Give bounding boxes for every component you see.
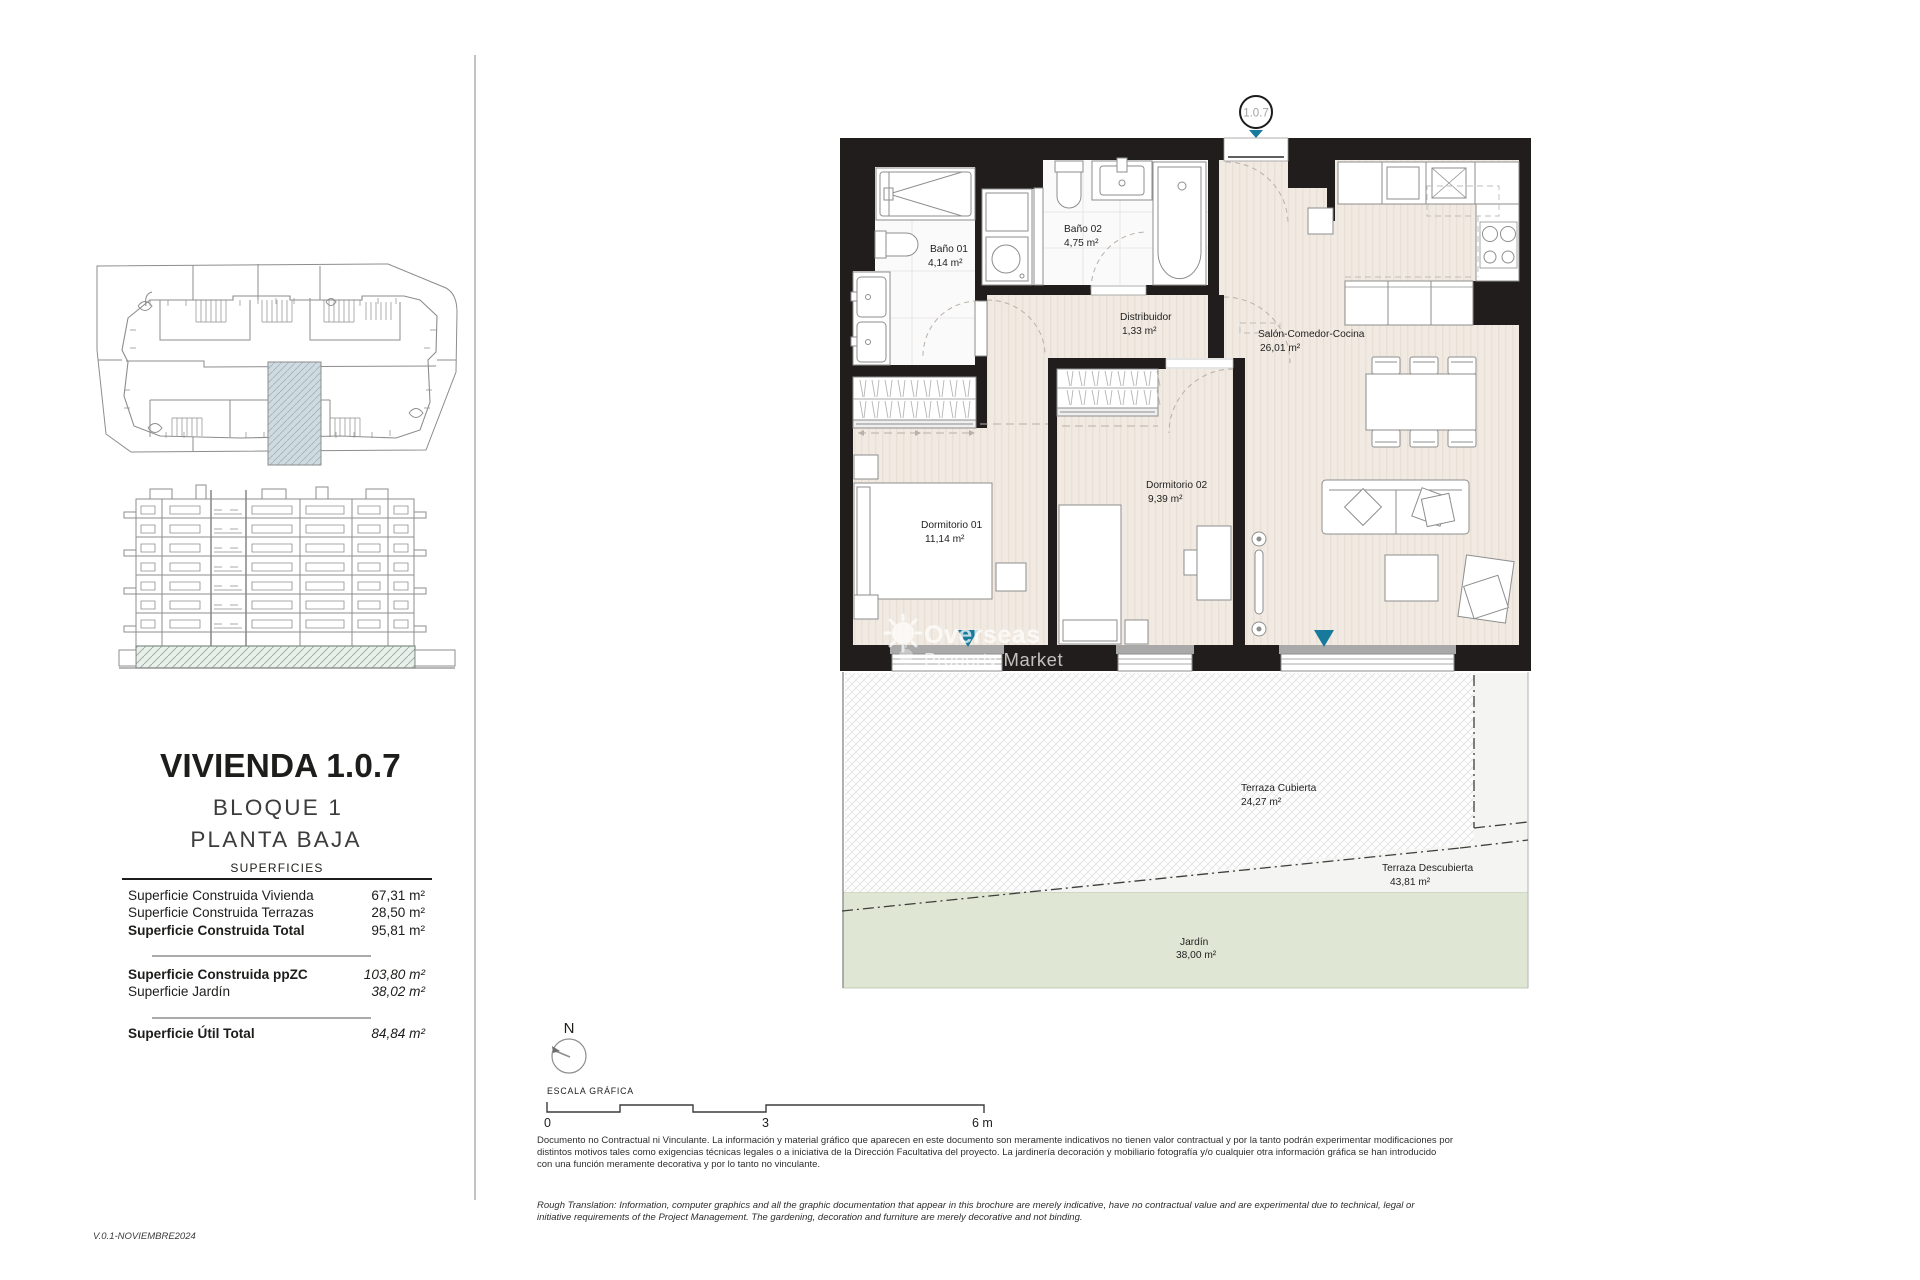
svg-text:1.0.7: 1.0.7 (1243, 108, 1269, 120)
svg-text:SUPERFICIES: SUPERFICIES (230, 861, 323, 875)
svg-text:ESCALA GRÁFICA: ESCALA GRÁFICA (547, 1086, 634, 1096)
svg-text:VIVIENDA 1.0.7: VIVIENDA 1.0.7 (160, 748, 401, 785)
svg-text:84,84 m²: 84,84 m² (371, 1026, 425, 1041)
svg-text:Superficie Construida Vivienda: Superficie Construida Vivienda (128, 888, 314, 903)
svg-text:6 m: 6 m (972, 1116, 993, 1130)
svg-text:Dormitorio 01: Dormitorio 01 (921, 520, 982, 531)
svg-text:N: N (564, 1020, 575, 1037)
svg-text:con una función meramente deco: con una función meramente decorativa y p… (537, 1159, 820, 1170)
svg-text:Distribuidor: Distribuidor (1120, 312, 1172, 323)
svg-text:Superficie Construida ppZC: Superficie Construida ppZC (128, 967, 308, 982)
svg-text:Superficie Construida Total: Superficie Construida Total (128, 923, 305, 938)
svg-text:BLOQUE 1: BLOQUE 1 (213, 795, 343, 820)
svg-text:Overseas: Overseas (924, 621, 1041, 649)
svg-text:43,81 m²: 43,81 m² (1390, 877, 1431, 888)
svg-text:26,01 m²: 26,01 m² (1260, 343, 1301, 354)
svg-text:Property Market: Property Market (924, 649, 1063, 670)
svg-text:95,81 m²: 95,81 m² (371, 923, 425, 938)
svg-text:0: 0 (544, 1116, 551, 1130)
svg-text:Jardín: Jardín (1180, 937, 1208, 948)
svg-text:PLANTA BAJA: PLANTA BAJA (190, 827, 361, 852)
svg-text:distintos motivos tales como: distintos motivos tales como exigencias … (537, 1147, 1436, 1158)
svg-text:103,80 m²: 103,80 m² (364, 967, 426, 982)
svg-text:28,50 m²: 28,50 m² (371, 905, 425, 920)
svg-text:Superficie Construida Terrazas: Superficie Construida Terrazas (128, 905, 314, 920)
svg-text:Terraza Descubierta: Terraza Descubierta (1382, 863, 1473, 874)
svg-text:Documento no Contractual ni Vi: Documento no Contractual ni Vinculante. … (537, 1135, 1453, 1146)
svg-text:3: 3 (762, 1116, 769, 1130)
svg-text:Baño 01: Baño 01 (930, 244, 968, 255)
svg-text:11,14 m²: 11,14 m² (925, 534, 965, 545)
svg-text:Rough Translation: Information: Rough Translation: Information, computer… (537, 1200, 1415, 1211)
svg-text:67,31 m²: 67,31 m² (371, 888, 425, 903)
svg-text:Baño 02: Baño 02 (1064, 224, 1102, 235)
svg-text:9,39 m²: 9,39 m² (1148, 494, 1183, 505)
svg-text:38,00 m²: 38,00 m² (1176, 950, 1217, 961)
svg-text:Terraza Cubierta: Terraza Cubierta (1241, 783, 1317, 794)
svg-text:V.0.1-NOVIEMBRE2024: V.0.1-NOVIEMBRE2024 (93, 1231, 196, 1242)
svg-text:Superficie Útil Total: Superficie Útil Total (128, 1026, 255, 1041)
svg-text:initiative requirements of the: initiative requirements of the Project M… (537, 1212, 1083, 1223)
svg-text:4,75 m²: 4,75 m² (1064, 238, 1099, 249)
svg-text:Salón-Comedor-Cocina: Salón-Comedor-Cocina (1258, 329, 1365, 340)
svg-text:4,14 m²: 4,14 m² (928, 258, 963, 269)
svg-text:1,33 m²: 1,33 m² (1122, 326, 1157, 337)
svg-text:38,02 m²: 38,02 m² (371, 984, 425, 999)
svg-text:24,27 m²: 24,27 m² (1241, 797, 1282, 808)
svg-text:Dormitorio 02: Dormitorio 02 (1146, 480, 1207, 491)
svg-text:Superficie Jardín: Superficie Jardín (128, 984, 230, 999)
